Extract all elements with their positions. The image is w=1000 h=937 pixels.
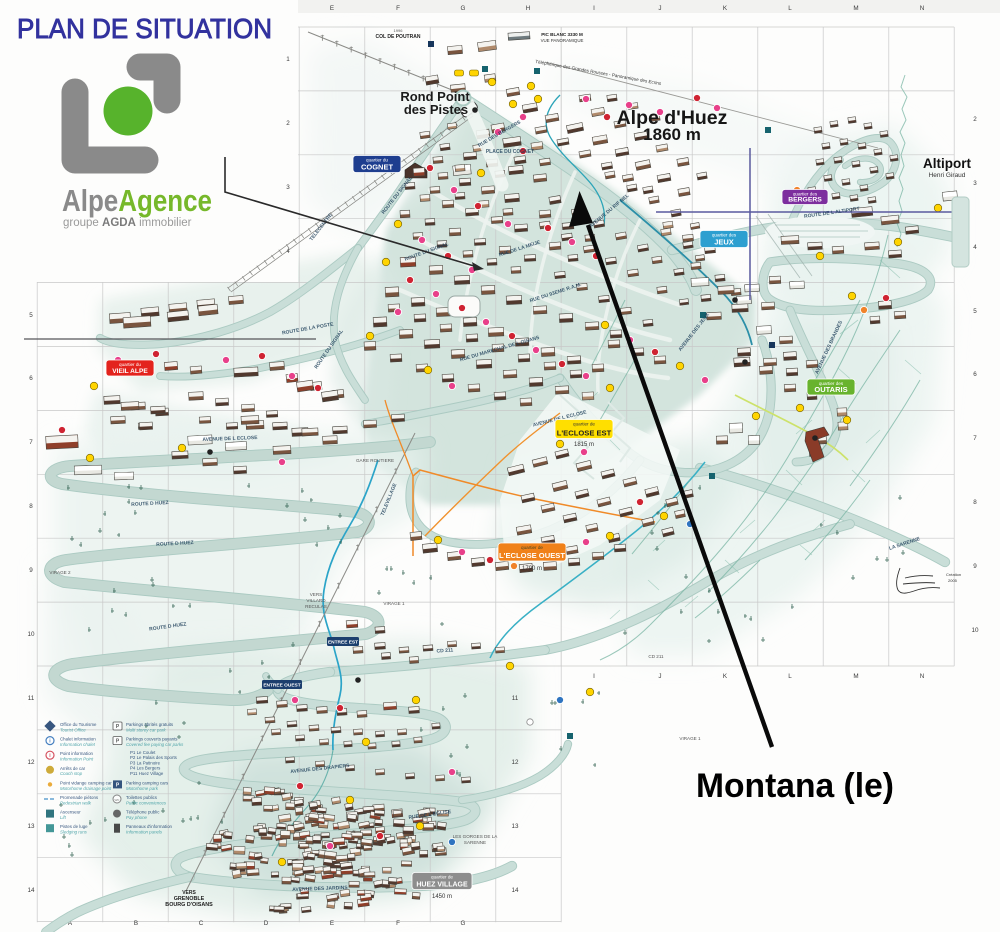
svg-text:ENTREE OUEST: ENTREE OUEST — [263, 683, 300, 689]
svg-text:1996: 1996 — [394, 28, 404, 33]
svg-text:PLACE DU COGNET: PLACE DU COGNET — [486, 149, 534, 155]
svg-text:des Pistes: des Pistes — [404, 102, 468, 117]
svg-text:Henri Giraud: Henri Giraud — [929, 172, 966, 179]
svg-text:Toilettes publics: Toilettes publics — [126, 795, 158, 800]
svg-text:Public conveniences: Public conveniences — [126, 800, 167, 805]
svg-text:Parkings couverts payants: Parkings couverts payants — [126, 737, 178, 742]
svg-text:VIRAGE 2: VIRAGE 2 — [49, 570, 71, 575]
svg-text:12: 12 — [511, 759, 519, 766]
svg-text:J: J — [658, 673, 661, 680]
svg-text:PIC BLANC 3330 M: PIC BLANC 3330 M — [541, 32, 583, 37]
svg-text:Covered fee paying car parks: Covered fee paying car parks — [126, 742, 184, 747]
svg-text:9: 9 — [29, 567, 33, 574]
svg-text:G: G — [461, 5, 466, 12]
svg-text:C: C — [199, 920, 204, 927]
svg-text:10: 10 — [27, 631, 35, 638]
svg-text:10: 10 — [971, 627, 979, 634]
svg-text:Parkings abrités gratuits: Parkings abrités gratuits — [126, 722, 174, 727]
svg-text:N: N — [920, 673, 925, 680]
svg-text:AlpeAgence: AlpeAgence — [62, 183, 212, 218]
svg-text:E: E — [330, 5, 334, 12]
svg-text:Information Point: Information Point — [60, 757, 94, 762]
svg-text:CD 211: CD 211 — [436, 647, 453, 654]
svg-text:quartier de: quartier de — [573, 422, 595, 427]
svg-text:N: N — [920, 5, 925, 12]
svg-text:L'ECLOSE EST: L'ECLOSE EST — [557, 428, 612, 437]
svg-text:BOURG D'OISANS: BOURG D'OISANS — [165, 902, 213, 908]
svg-text:OUTARIS: OUTARIS — [814, 385, 847, 394]
svg-text:Pedestrian walk: Pedestrian walk — [60, 800, 92, 805]
svg-text:Arrêts de car: Arrêts de car — [60, 766, 86, 771]
svg-text:Point information: Point information — [60, 751, 94, 756]
svg-text:4: 4 — [973, 244, 977, 251]
svg-text:wc: wc — [115, 797, 120, 802]
svg-text:Création: Création — [946, 572, 961, 577]
svg-text:G: G — [461, 920, 466, 927]
svg-text:1815 m: 1815 m — [574, 442, 594, 448]
svg-text:B: B — [134, 920, 138, 927]
svg-text:Promenade piétons: Promenade piétons — [60, 795, 99, 800]
svg-text:RECULAS: RECULAS — [305, 604, 327, 609]
svg-text:M: M — [853, 5, 858, 12]
svg-text:JEUX: JEUX — [714, 237, 734, 246]
svg-text:6: 6 — [29, 375, 33, 382]
svg-text:Chalet information: Chalet information — [60, 737, 96, 742]
svg-text:VERS: VERS — [310, 592, 323, 597]
svg-text:Multi storey car park: Multi storey car park — [126, 727, 166, 732]
svg-text:I: I — [593, 673, 595, 680]
svg-text:Point vidange camping car: Point vidange camping car — [60, 780, 112, 785]
svg-text:2005: 2005 — [948, 578, 958, 583]
svg-text:2: 2 — [286, 120, 290, 127]
svg-text:VIRAGE 1: VIRAGE 1 — [383, 601, 405, 606]
svg-text:5: 5 — [973, 308, 977, 315]
svg-text:I: I — [593, 5, 595, 12]
svg-text:Motorhome park: Motorhome park — [126, 786, 159, 791]
svg-text:H: H — [526, 5, 531, 12]
svg-text:Office du Tourisme: Office du Tourisme — [60, 722, 97, 727]
svg-text:9: 9 — [973, 563, 977, 570]
svg-text:Motorhome drainage point: Motorhome drainage point — [60, 786, 112, 791]
svg-text:3: 3 — [286, 184, 290, 191]
svg-text:L: L — [788, 5, 792, 12]
svg-text:PLAN DE SITUATION: PLAN DE SITUATION — [17, 13, 272, 44]
svg-text:Tourist Office: Tourist Office — [60, 727, 86, 732]
svg-text:F: F — [396, 5, 400, 12]
svg-text:7: 7 — [973, 435, 977, 442]
svg-text:1860 m: 1860 m — [643, 125, 701, 144]
svg-text:L'ECLOSE OUEST: L'ECLOSE OUEST — [499, 551, 565, 560]
svg-text:2: 2 — [973, 116, 977, 123]
svg-text:E: E — [330, 920, 334, 927]
svg-text:Pay phone: Pay phone — [126, 815, 148, 820]
svg-text:1450 m: 1450 m — [432, 894, 452, 900]
svg-text:Lift: Lift — [60, 815, 67, 820]
svg-text:8: 8 — [29, 503, 33, 510]
svg-text:COGNET: COGNET — [361, 162, 394, 171]
svg-text:14: 14 — [27, 887, 35, 894]
svg-text:ENTREE EST: ENTREE EST — [328, 640, 358, 646]
svg-text:quartier de: quartier de — [521, 545, 543, 550]
svg-text:1790 m: 1790 m — [522, 566, 542, 572]
svg-text:5: 5 — [29, 312, 33, 319]
svg-text:Téléphone public: Téléphone public — [126, 810, 160, 815]
svg-text:J: J — [658, 5, 661, 12]
svg-text:COL DE POUTRAN: COL DE POUTRAN — [376, 34, 421, 40]
svg-text:Ascenseur: Ascenseur — [60, 810, 81, 815]
svg-text:13: 13 — [27, 823, 35, 830]
svg-text:F: F — [396, 920, 400, 927]
svg-text:VILLARD: VILLARD — [306, 598, 326, 603]
svg-text:12: 12 — [27, 759, 35, 766]
svg-text:SARENNE: SARENNE — [464, 840, 486, 845]
svg-text:Pistes de luge: Pistes de luge — [60, 824, 88, 829]
svg-text:3: 3 — [973, 180, 977, 187]
svg-text:GARE ROUTIERE: GARE ROUTIERE — [356, 458, 394, 463]
svg-text:11: 11 — [28, 695, 35, 702]
svg-text:6: 6 — [973, 371, 977, 378]
svg-text:1: 1 — [286, 56, 290, 63]
svg-text:BERGERS: BERGERS — [788, 196, 822, 203]
svg-text:VUE PANORAMIQUE: VUE PANORAMIQUE — [541, 38, 584, 43]
svg-text:CD 211: CD 211 — [648, 654, 664, 659]
svg-text:D: D — [264, 920, 269, 927]
svg-text:L: L — [788, 673, 792, 680]
svg-text:LES GORGES DE LA: LES GORGES DE LA — [453, 834, 499, 839]
svg-text:Sledging runs: Sledging runs — [60, 830, 88, 835]
svg-text:Montana (le): Montana (le) — [696, 767, 894, 805]
svg-text:Information panels: Information panels — [126, 830, 163, 835]
svg-text:quartier du: quartier du — [119, 362, 141, 367]
svg-text:VIRAGE 1: VIRAGE 1 — [679, 736, 701, 741]
svg-text:VIEIL ALPE: VIEIL ALPE — [112, 368, 148, 375]
svg-text:groupe AGDA immobilier: groupe AGDA immobilier — [63, 217, 192, 229]
svg-text:8: 8 — [973, 499, 977, 506]
svg-text:quartier de: quartier de — [431, 875, 453, 880]
svg-text:Altiport: Altiport — [923, 156, 971, 171]
svg-text:14: 14 — [511, 887, 519, 894]
svg-text:P11 Huez Village: P11 Huez Village — [130, 771, 164, 776]
svg-text:M: M — [853, 673, 858, 680]
svg-text:11: 11 — [512, 695, 519, 702]
svg-text:Panneaux d'information: Panneaux d'information — [126, 824, 173, 829]
svg-text:13: 13 — [511, 823, 519, 830]
svg-text:HUEZ VILLAGE: HUEZ VILLAGE — [416, 881, 468, 888]
svg-text:7: 7 — [29, 439, 33, 446]
svg-text:Information chalet: Information chalet — [60, 742, 96, 747]
svg-text:Coach stop: Coach stop — [60, 771, 83, 776]
svg-text:Parking camping cars: Parking camping cars — [126, 780, 169, 785]
